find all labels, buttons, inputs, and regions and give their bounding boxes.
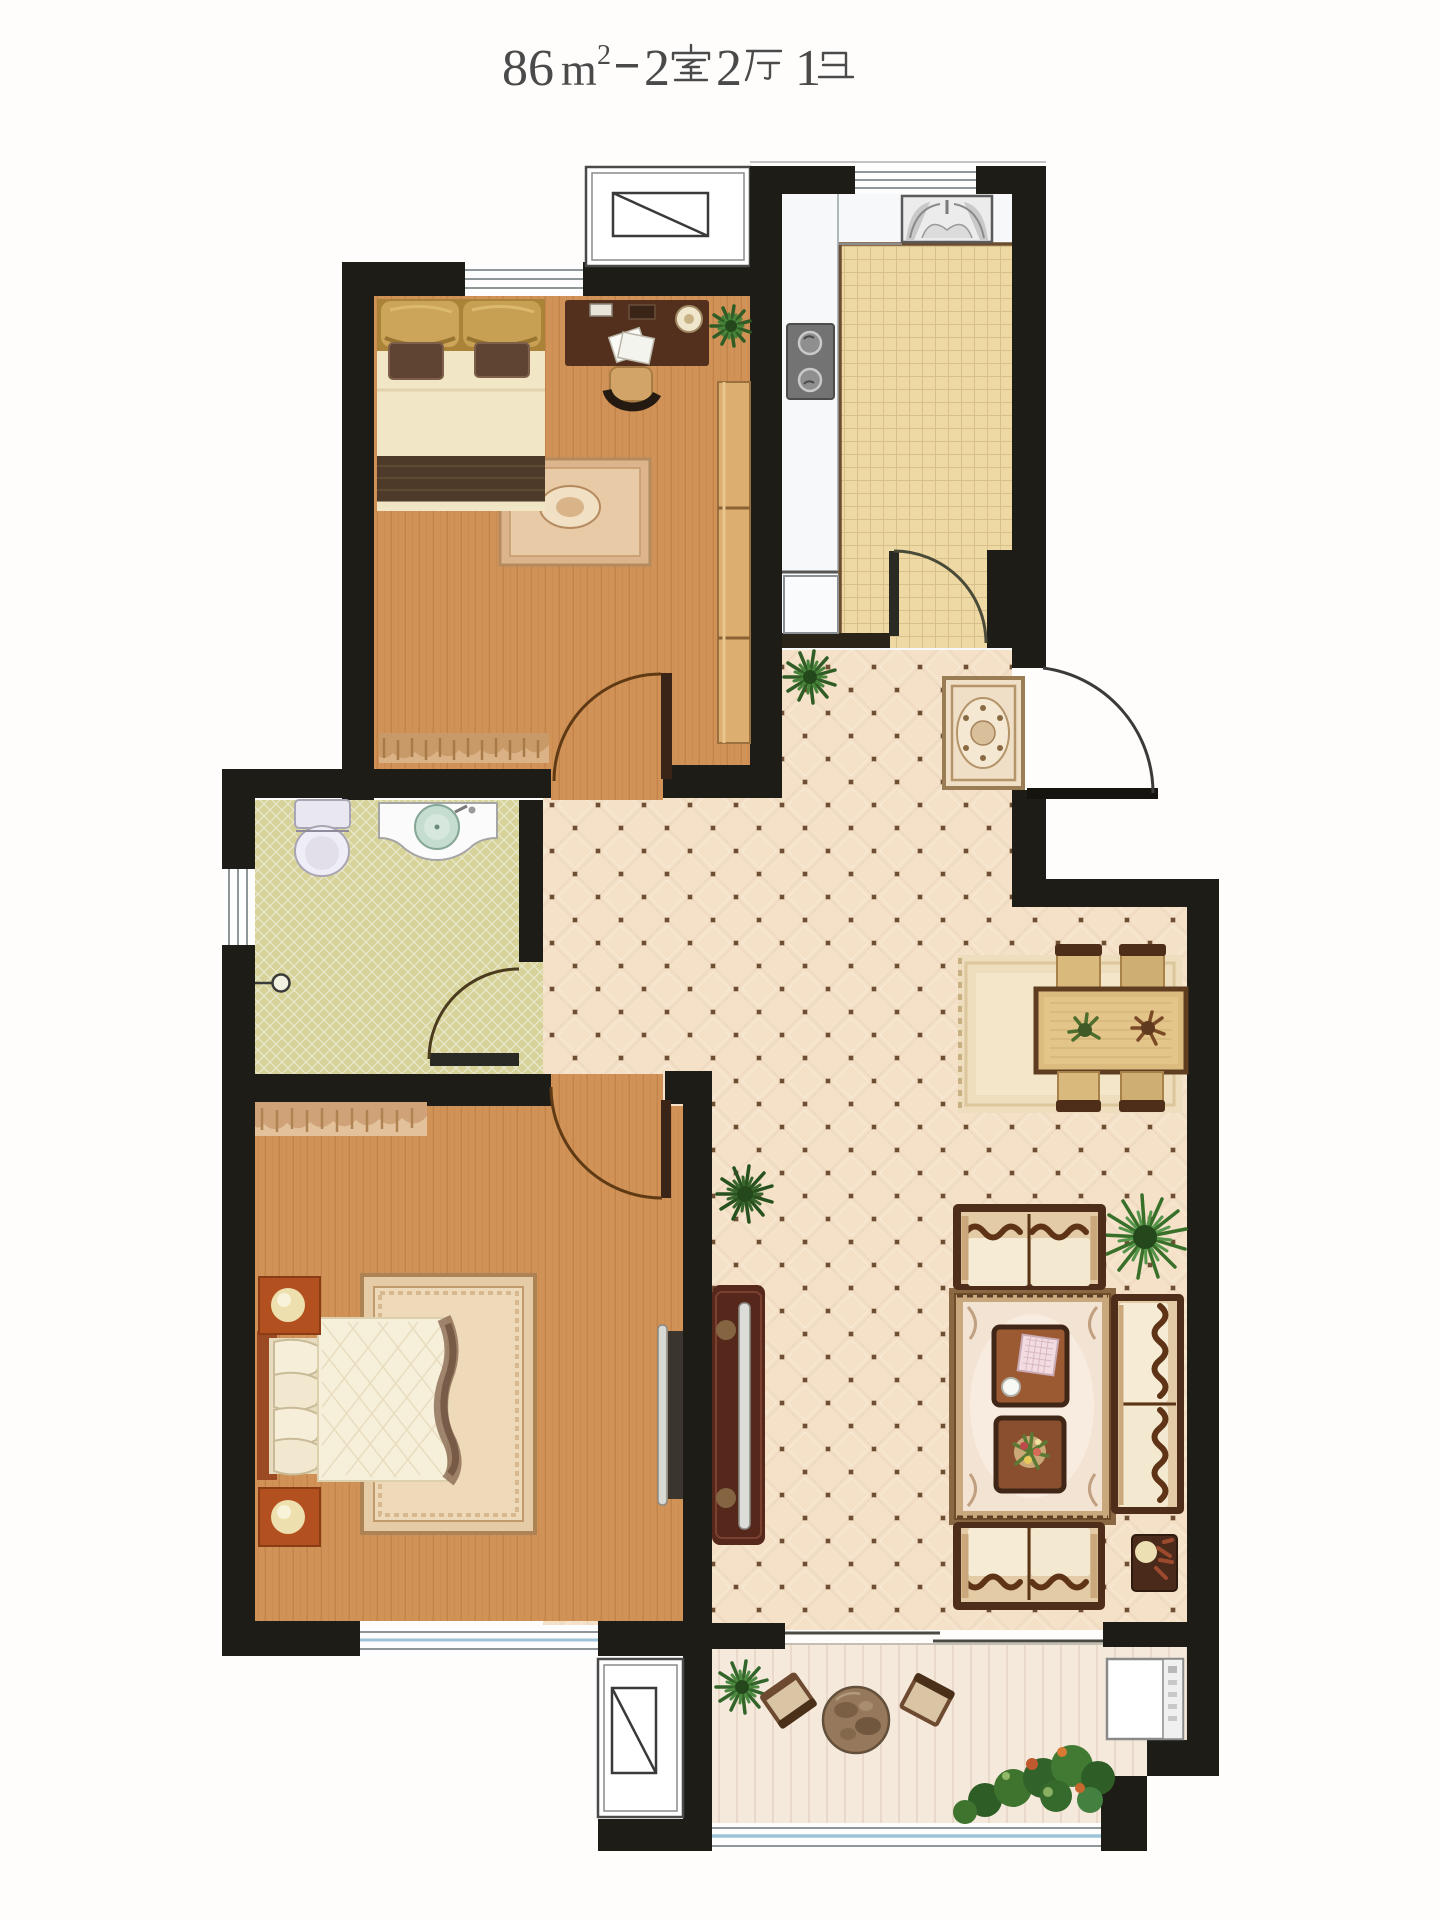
svg-text:2: 2: [597, 40, 611, 71]
svg-text:86: 86: [502, 40, 554, 97]
svg-text:1: 1: [795, 40, 821, 97]
svg-text:2: 2: [644, 40, 670, 97]
svg-text:m: m: [561, 44, 597, 95]
svg-text:2: 2: [716, 40, 742, 97]
